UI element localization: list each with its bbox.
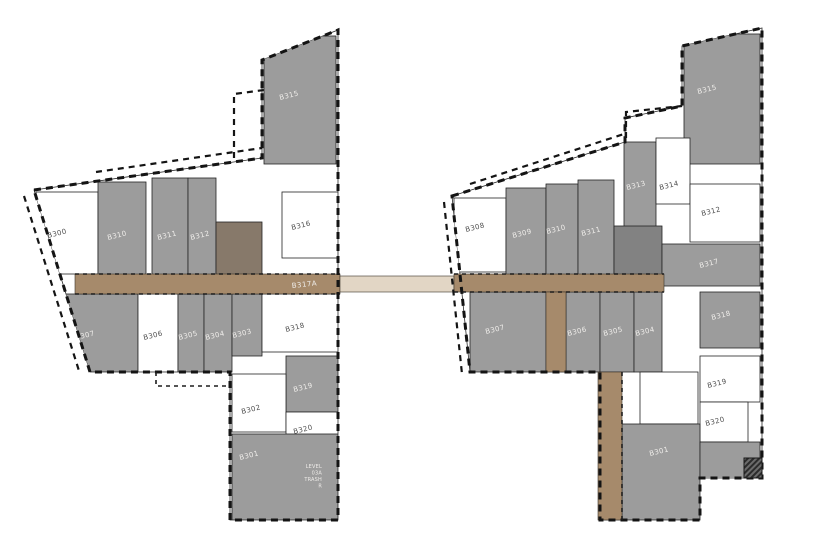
corridor-segment bbox=[340, 276, 454, 292]
room-B312 bbox=[188, 178, 216, 278]
corridor-segment bbox=[546, 292, 566, 372]
room-service bbox=[640, 372, 698, 424]
room-service bbox=[216, 222, 262, 280]
room-B307 bbox=[470, 292, 546, 372]
room-B303 bbox=[232, 294, 262, 356]
room-B315 bbox=[684, 34, 760, 164]
level-note-line: TRASH bbox=[303, 477, 322, 483]
room-B319 bbox=[700, 356, 760, 402]
room-B308 bbox=[454, 198, 506, 272]
level-note-line: 03A bbox=[312, 471, 323, 477]
stair-hatch bbox=[744, 458, 762, 478]
corridor-segment bbox=[454, 274, 664, 292]
floor-plan-canvas: B315B300B310B311B312B316B307B306B305B304… bbox=[0, 0, 831, 555]
room-B318 bbox=[700, 292, 760, 348]
level-note-line: R bbox=[318, 484, 322, 490]
room-B301 bbox=[232, 434, 338, 520]
level-note-line: LEVEL bbox=[306, 464, 322, 470]
room-B314 bbox=[656, 138, 690, 204]
floor-plan-page: B315B300B310B311B312B316B307B306B305B304… bbox=[0, 0, 831, 555]
left-bottom-step-dashes bbox=[156, 372, 230, 386]
room-B311 bbox=[152, 178, 188, 278]
corridor-segment bbox=[598, 372, 622, 520]
room-B301 bbox=[622, 424, 700, 520]
room-B307 bbox=[62, 294, 138, 372]
